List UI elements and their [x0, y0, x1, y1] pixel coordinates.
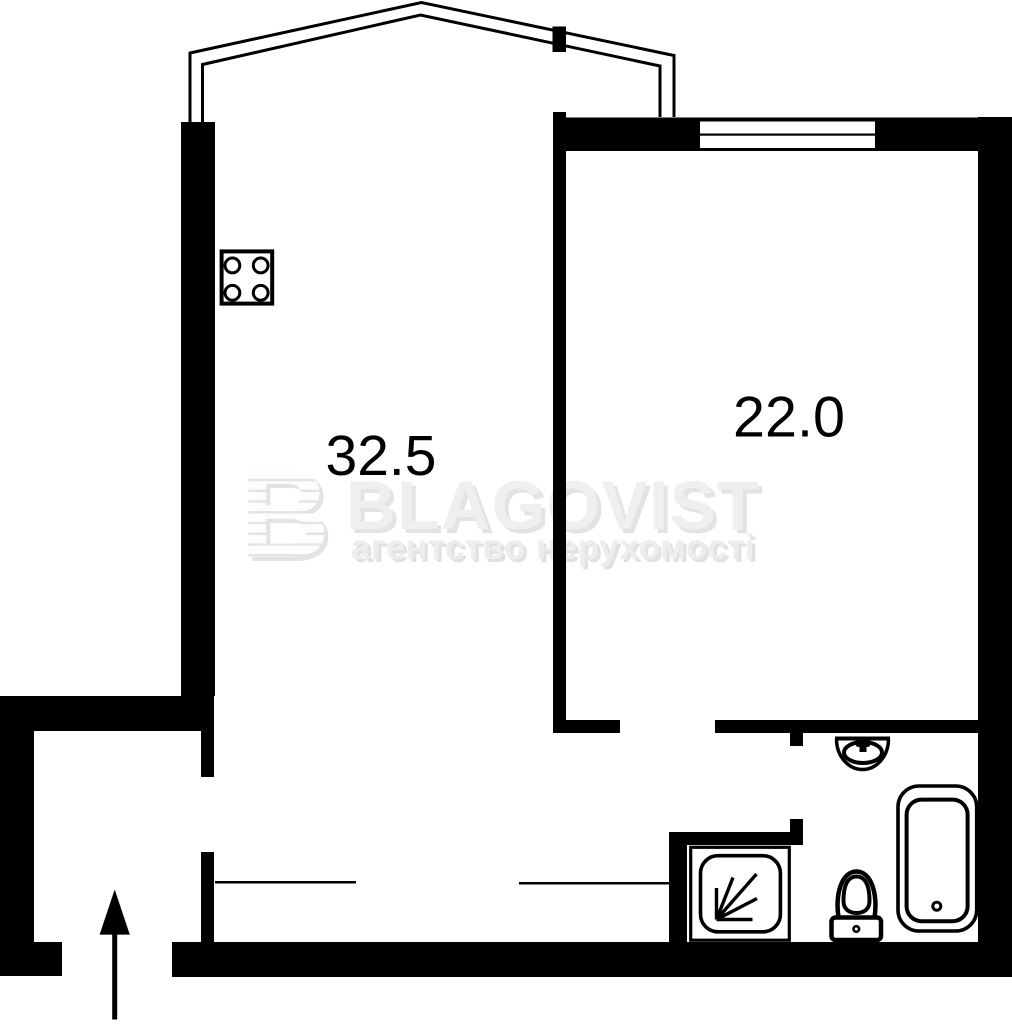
svg-text:22.0: 22.0 [733, 386, 845, 450]
svg-text:32.5: 32.5 [326, 424, 437, 488]
svg-text:B: B [240, 445, 330, 584]
